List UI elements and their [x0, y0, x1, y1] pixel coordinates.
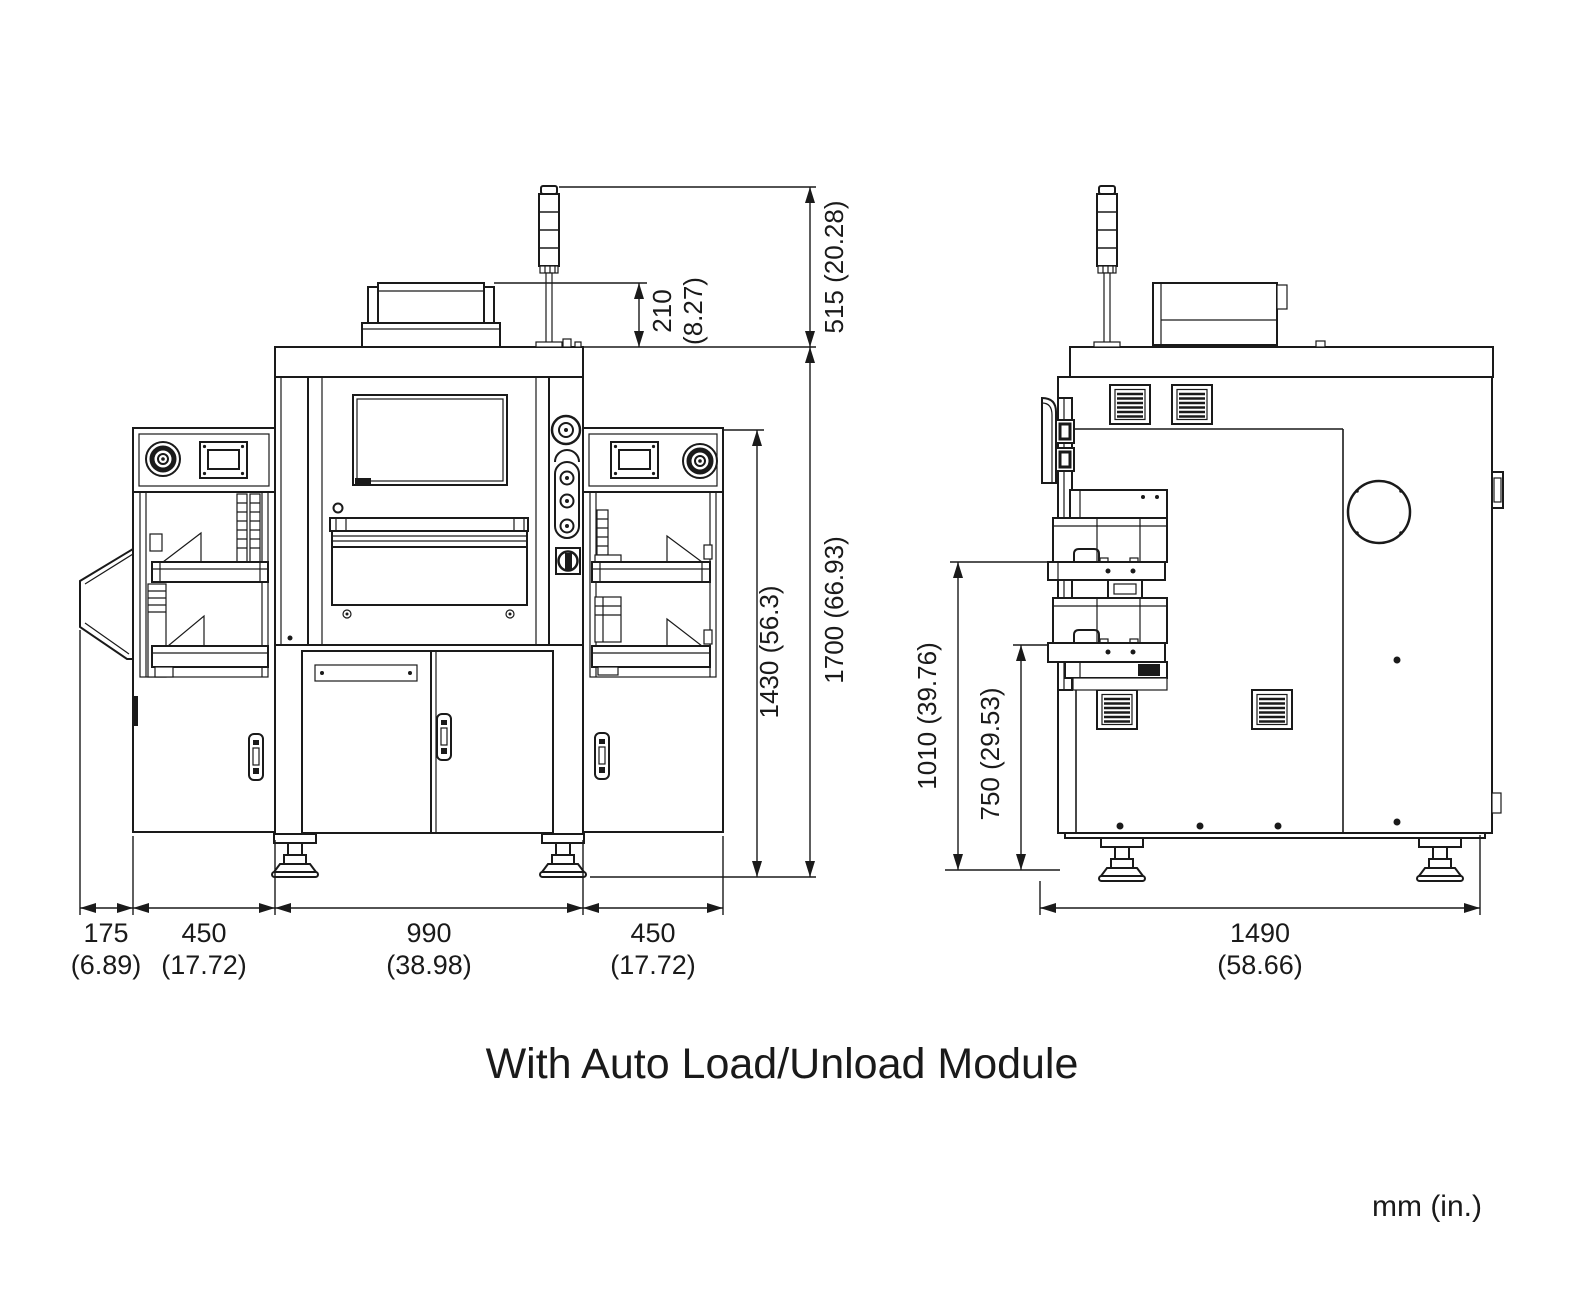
- touchscreen-monitor: [353, 395, 507, 485]
- vent-grille-icon: [1097, 690, 1137, 729]
- side-lower-platform: [1048, 598, 1167, 662]
- center-cabinet-door-handle: [437, 714, 451, 760]
- vent-grille-icon: [1252, 690, 1292, 729]
- side-upper-platform: [1048, 518, 1167, 580]
- dim-label-1430: 1430 (56.3): [754, 586, 784, 719]
- front-signal-tower-icon: [536, 186, 562, 347]
- technical-drawing-canvas: 515 (20.28) 210 (8.27) 1430 (56.3) 1700 …: [0, 0, 1576, 1301]
- right-loader-door-handle: [595, 733, 609, 779]
- front-view: [80, 186, 723, 877]
- right-loader-estop-button-icon: [683, 444, 717, 478]
- dim-label-tower-height: 515 (20.28): [819, 201, 849, 334]
- right-loader-display-panel: [611, 442, 658, 478]
- dim-label-1490-in: (58.66): [1217, 950, 1303, 980]
- dim-label-450-right-in: (17.72): [610, 950, 696, 980]
- dim-label-210-in: (8.27): [678, 277, 708, 345]
- side-view: [1042, 186, 1503, 881]
- dim-label-450-left-mm: 450: [181, 918, 226, 948]
- dim-label-1010: 1010 (39.76): [912, 642, 942, 789]
- key-switch-icon: [556, 548, 580, 574]
- dim-label-450-left-in: (17.72): [161, 950, 247, 980]
- drawing-caption: With Auto Load/Unload Module: [486, 1040, 1079, 1088]
- side-monitor-housing: [1153, 283, 1287, 345]
- front-right-loader: [583, 428, 723, 832]
- dim-label-175-mm: 175: [83, 918, 128, 948]
- side-signal-tower-icon: [1094, 186, 1120, 347]
- front-left-foot: [272, 834, 318, 877]
- vent-grille-icon: [1172, 385, 1212, 424]
- units-note: mm (in.): [1372, 1190, 1482, 1223]
- front-left-loader: [133, 428, 275, 832]
- side-top-bar: [1070, 347, 1493, 377]
- board-entry-slot: [330, 518, 528, 618]
- dim-label-210-mm: 210: [647, 289, 677, 332]
- dim-label-175-in: (6.89): [71, 950, 142, 980]
- front-side-flap: [80, 549, 133, 659]
- dim-label-750: 750 (29.53): [975, 688, 1005, 821]
- dim-label-1700: 1700 (66.93): [819, 536, 849, 683]
- machine-top-bar: [275, 347, 583, 377]
- side-right-foot: [1417, 838, 1463, 881]
- vent-grille-icon: [1110, 385, 1150, 424]
- left-loader-door-handle: [249, 734, 263, 780]
- front-monitor-housing: [362, 283, 500, 347]
- drawing-page: 515 (20.28) 210 (8.27) 1430 (56.3) 1700 …: [0, 0, 1576, 1301]
- center-cabinet: [302, 651, 553, 833]
- dim-label-1490-mm: 1490: [1230, 918, 1290, 948]
- dim-label-990-in: (38.98): [386, 950, 472, 980]
- front-center-module: [275, 347, 583, 833]
- dim-label-450-right-mm: 450: [630, 918, 675, 948]
- side-left-foot: [1099, 838, 1145, 881]
- dim-label-990-mm: 990: [406, 918, 451, 948]
- left-loader-display-panel: [200, 442, 247, 478]
- left-loader-estop-button-icon: [146, 442, 180, 476]
- front-right-foot: [540, 834, 586, 877]
